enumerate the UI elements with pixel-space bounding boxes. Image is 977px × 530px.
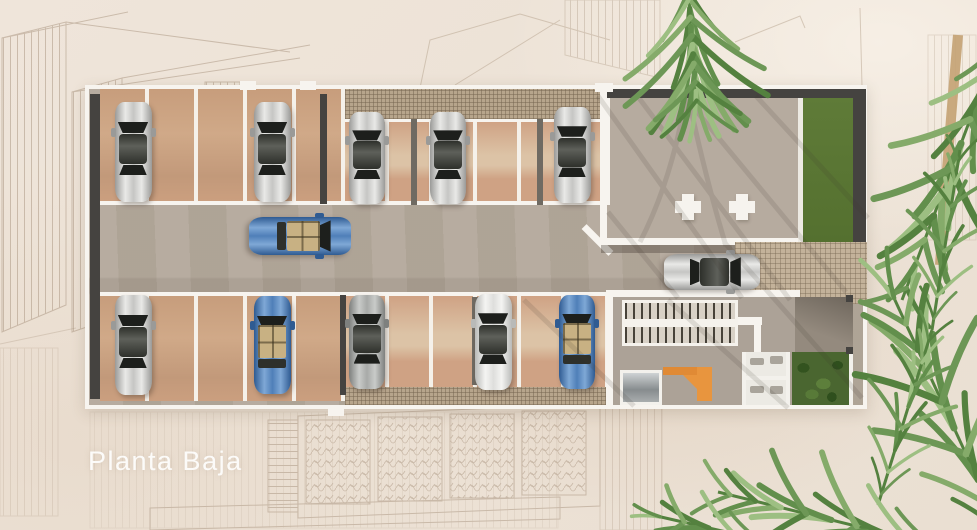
car-part-rearwindow xyxy=(479,354,506,364)
car-part-rearwindow xyxy=(558,167,585,177)
car-part-mirror-l xyxy=(315,213,324,218)
car-part-roof xyxy=(353,141,381,169)
car-top-2 xyxy=(254,102,291,202)
car-part-windshield xyxy=(257,122,287,133)
car-top-1 xyxy=(115,102,152,202)
car-part-mirror-r xyxy=(384,136,389,145)
car-part-mirror-l xyxy=(111,128,116,137)
car-part-roof xyxy=(700,258,729,286)
car-entrance xyxy=(664,254,760,290)
car-part-cabin xyxy=(563,323,591,354)
car-part-rearwindow xyxy=(354,354,381,363)
car-part-roof xyxy=(119,134,148,164)
car-part-mirror-r xyxy=(511,319,516,328)
car-bottom-3 xyxy=(349,295,385,389)
car-part-mirror-l xyxy=(250,128,255,137)
car-part-windshield xyxy=(557,126,587,137)
car-part-mirror-r xyxy=(290,321,295,330)
car-part-roof xyxy=(479,325,508,354)
render-canvas: Planta Baja xyxy=(0,0,977,530)
car-part-mirror-l xyxy=(550,132,555,141)
car-part-mirror-r xyxy=(151,321,156,330)
car-part-roof xyxy=(258,134,287,164)
car-part-deck xyxy=(277,222,286,251)
car-part-windshield xyxy=(118,315,148,326)
car-part-mirror-l xyxy=(345,319,350,328)
car-part-mirror-r xyxy=(465,136,470,145)
car-part-windshield xyxy=(352,130,382,140)
car-part-windshield xyxy=(118,122,148,133)
car-part-mirror-l xyxy=(250,321,255,330)
car-part-deck xyxy=(563,355,590,363)
car-part-deck xyxy=(258,359,286,368)
car-part-mirror-r xyxy=(290,128,295,137)
car-part-cabin xyxy=(258,325,287,357)
car-part-mirror-l xyxy=(726,250,735,255)
car-part-mirror-l xyxy=(426,136,431,145)
car-part-windshield xyxy=(730,257,741,287)
page-title: Planta Baja xyxy=(88,446,243,477)
car-part-windshield xyxy=(352,314,382,324)
car-part-mirror-l xyxy=(111,321,116,330)
car-part-windshield xyxy=(433,130,463,140)
car-top-4 xyxy=(430,112,466,204)
car-part-rearwindow xyxy=(435,170,462,179)
car-part-cabin xyxy=(287,221,321,251)
car-part-mirror-r xyxy=(726,289,735,294)
car-bottom-5 xyxy=(559,295,595,389)
car-part-mirror-r xyxy=(594,319,599,328)
car-top-5 xyxy=(554,107,591,203)
car-part-windshield xyxy=(478,313,508,324)
car-part-mirror-l xyxy=(345,136,350,145)
car-part-mirror-l xyxy=(471,319,476,328)
car-part-mirror-r xyxy=(315,254,324,259)
car-part-windshield xyxy=(319,220,330,251)
car-part-mirror-l xyxy=(555,319,560,328)
car-part-roof xyxy=(558,138,587,167)
car-part-mirror-r xyxy=(151,128,156,137)
car-part-mirror-r xyxy=(590,132,595,141)
car-part-rearwindow xyxy=(354,170,381,179)
car-bottom-1 xyxy=(115,295,152,395)
car-part-rearwindow xyxy=(119,358,146,368)
car-bottom-4 xyxy=(475,294,512,390)
car-part-roof xyxy=(119,327,148,357)
car-part-rearwindow xyxy=(258,165,285,175)
car-bottom-2 xyxy=(254,296,291,394)
car-driveway-convertible xyxy=(249,217,351,255)
car-part-roof xyxy=(434,141,462,169)
car-part-mirror-r xyxy=(384,319,389,328)
car-part-roof xyxy=(353,325,381,353)
car-top-3 xyxy=(349,112,385,204)
car-part-rearwindow xyxy=(690,259,700,286)
car-part-rearwindow xyxy=(119,165,146,175)
